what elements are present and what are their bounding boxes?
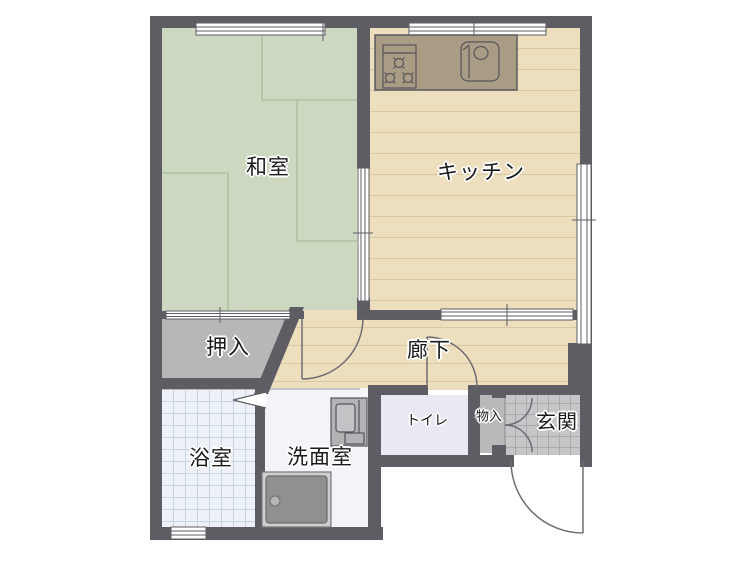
room-label-yokushitsu: 浴室	[189, 442, 233, 472]
room-label-washitsu: 和室	[246, 151, 290, 181]
room-label-toilet: トイレ	[406, 410, 448, 430]
room-label-kitchen: キッチン	[437, 156, 525, 186]
room-label-monoire: 物入	[476, 406, 502, 425]
floor-plan: 和室 キッチン 押入 廊下 浴室 洗面室 トイレ 物入 玄関	[0, 0, 743, 567]
room-label-rouka: 廊下	[407, 334, 451, 364]
room-label-genkan: 玄関	[536, 406, 578, 435]
room-label-oshiire: 押入	[206, 331, 250, 361]
room-label-senmen: 洗面室	[287, 441, 353, 471]
